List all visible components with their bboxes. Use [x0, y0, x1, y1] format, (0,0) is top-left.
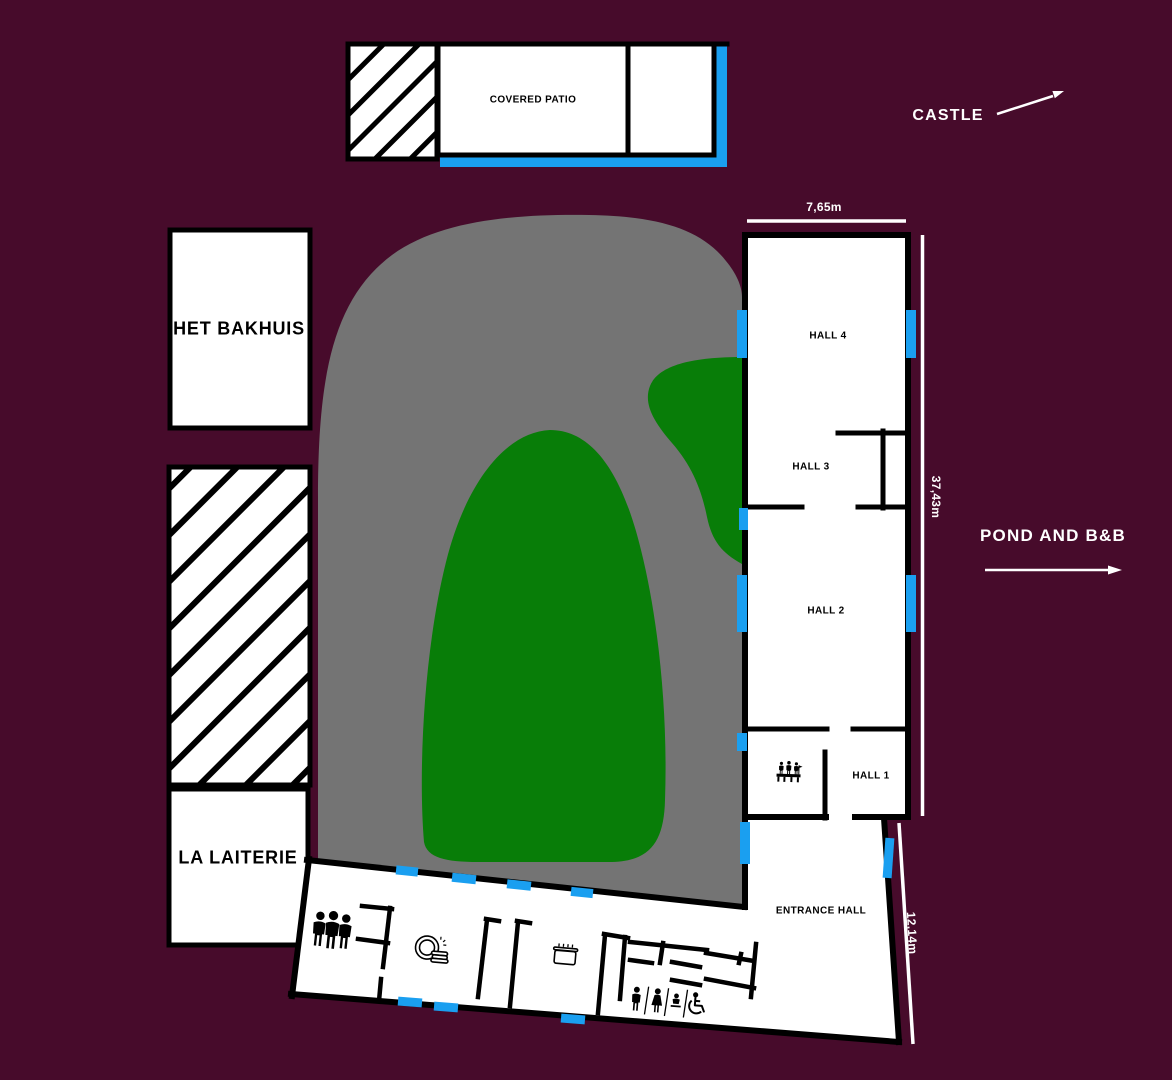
entrance-length-dimension: 12,14m [904, 911, 920, 954]
covered-patio-building [348, 44, 727, 167]
hall1-door-gap [829, 812, 852, 822]
patio-hatched-section [348, 44, 437, 159]
patio-side-section [628, 44, 714, 155]
hall-4-label: HALL 4 [809, 331, 846, 342]
pond-arrow [985, 566, 1122, 575]
castle-direction-label: CASTLE [912, 107, 983, 125]
castle-arrow [997, 91, 1064, 114]
hall-1-label: HALL 1 [852, 771, 889, 782]
la-laiterie-label: LA LAITERIE [178, 848, 297, 869]
pond-bnb-direction-label: POND AND B&B [980, 526, 1126, 546]
hatched-building [169, 467, 310, 785]
hall-3-label: HALL 3 [792, 462, 829, 473]
floor-plan: COVERED PATIO HET BAKHUIS LA LAITERIE HA… [0, 0, 1172, 1080]
het-bakhuis-label: HET BAKHUIS [173, 319, 305, 340]
hall-2-label: HALL 2 [807, 606, 844, 617]
hall-width-dimension: 7,65m [806, 200, 842, 214]
entrance-hall-label: ENTRANCE HALL [776, 906, 866, 917]
covered-patio-label: COVERED PATIO [490, 95, 577, 106]
hall-length-dimension: 37,43m [929, 476, 943, 519]
